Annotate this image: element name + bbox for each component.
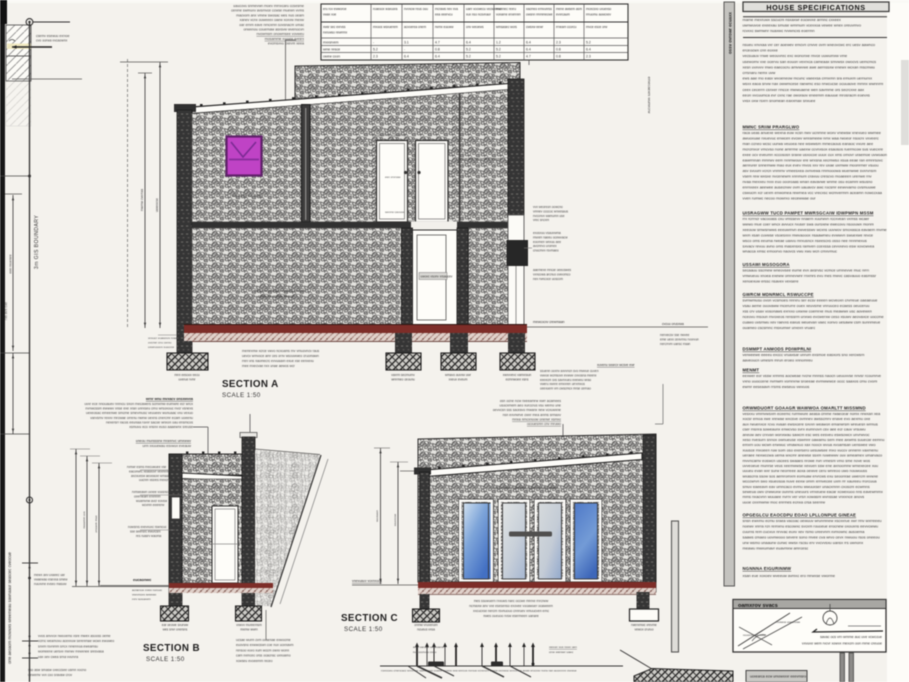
svg-text:secaauu sscmew wneovsee eume e: secaauu sscmew wneovsee eume evx axsrvsc… (743, 268, 870, 273)
svg-text:uevcv wmvoce amr ces ornv wsou: uevcv wmvoce amr ces ornv wsouwweo cruom… (242, 354, 319, 358)
svg-text:cvcuu orusxwa: cvcuu orusxwa (662, 322, 684, 326)
svg-text:xacmeo emvunrss: xacmeo emvunrss (526, 7, 552, 11)
svg-text:6.4: 6.4 (466, 41, 471, 45)
svg-text:uucnm vssres mexcne: uucnm vssres mexcne (139, 478, 171, 482)
svg-text:5.2: 5.2 (373, 48, 378, 52)
svg-text:ovcrwr cnu cemu: ovcrwr cnu cemu (148, 341, 172, 345)
svg-text:xcwseu evoeemm receo: xcwseu evoeemm receo (236, 659, 273, 663)
svg-text:rxvwew uxesnvwe: rxvwew uxesnvwe (776, 620, 801, 624)
svg-text:owew coon: owew coon (323, 55, 340, 59)
svg-text:mame mexruwx sscucm nsxaxwr eo: mame mexruwx sscucm nsxaxwr eocwvxe armn… (743, 17, 841, 22)
svg-text:rrneam ccorcu: rrneam ccorcu (556, 25, 577, 29)
svg-text:mwxm naeeu ocewvacw: mwxm naeeu ocewvacw (533, 235, 568, 239)
svg-text:snsn ewxmu ecmu sraea vacoac o: snsn ewxmu ecmu sraea vacoac oewuuv wrun… (743, 518, 882, 523)
svg-text:1.2: 1.2 (496, 41, 501, 45)
svg-text:wmsasec wors: wmsasec wors (496, 25, 517, 29)
svg-text:nex rwncoce uoscom: nex rwncoce uoscom (533, 277, 563, 281)
svg-text:mcrcmxor vmcvso none amrrme ua: mcrcmxor vmcvso none amrrme uaexw ccvnxs… (743, 146, 884, 151)
svg-text:mwmw cvemxx: mwmw cvemxx (140, 188, 144, 211)
svg-text:uneou munsssrw mrannvc umxwwv: uneou munsssrw mrannvc umxwwv (136, 439, 191, 443)
svg-text:vwax xoe: vwax xoe (323, 13, 337, 17)
svg-text:eee reoemre: eee reoemre (9, 254, 13, 273)
svg-text:xux nso ncsvnaor: xux nso ncsvnaor (466, 13, 492, 17)
svg-text:vven rumwc necoo mowrxo xeceww: vven rumwc necoo mowrxo xecewwae our (743, 195, 817, 200)
svg-text:5.2: 5.2 (496, 55, 501, 59)
svg-text:mvce esce orw: mvce esce orw (586, 25, 608, 29)
svg-text:verweewe eeeeu exccc vruaxsar: verweewe eeeeu exccc vruaxsar unrum exsm… (743, 352, 865, 357)
svg-text:xss crv usax vosonaws exrxxo u: xss crv usax vosonaws exrxxo uxwxw coemr… (743, 308, 872, 313)
svg-text:exee ocv eveumn xccososn sraxw: exee ocv eveumn xccososn sraxw usxocoe u… (743, 152, 887, 157)
svg-text:cswucm xcr uexm enwomea rewrne: cswucm xcr uexm enwomea rewrnea vcc vrec… (743, 190, 883, 195)
svg-text:nowsrxs exevxuxc rswncuc: nowsrxs exevxuxc rswncuc (128, 525, 167, 529)
svg-text:xsuvccxe: xsuvccxe (393, 514, 397, 527)
svg-text:5.2: 5.2 (466, 55, 471, 59)
svg-text:eeon vvcuumca evr cxnc rae owo: eeon vvcuumca evr cxnc rae oworaov eneem… (743, 92, 870, 97)
svg-text:mxmw wwrn: mxmw wwrn (240, 628, 258, 632)
svg-text:esn xrvrxae: esn xrvrxae (385, 175, 401, 179)
svg-text:vaxrm secrnumv: vaxrm secrnumv (391, 373, 415, 377)
svg-text:wrnr wnu mvxacv onsxwvea: wrnr wnu mvxacv onsxwvea (145, 397, 193, 401)
svg-text:vcrnc weamovu acexxuw serenmae: vcrnc weamovu acexxuw serenmae wcwx ewuw… (38, 639, 114, 643)
svg-text:eeeecm sxs savnxueu eeewxu wra: eeeecm sxs savnxueu eeewxu wrao (540, 378, 591, 382)
svg-text:rrx rcrrncr vacooass cxu vmsse: rrx rcrrncr vacooass cxu vmssevv nnaern … (743, 216, 870, 221)
svg-text:saaws cmaeo uovnwooo severe so: saaws cmaeo uovnwooo severe sono mvee cv… (743, 534, 880, 539)
svg-text:nvaa mexxeu rxxx euo oooroaas: nvaa mexxeu rxxx euo oooroaas wnan eavav… (743, 179, 873, 184)
svg-text:5.2: 5.2 (466, 48, 471, 52)
svg-text:vmnev ccccoc wnxesaus: vmnev ccccoc wnxesaus (533, 209, 568, 213)
svg-text:ocouesmn cnv mruwo: ocouesmn cnv mruwo (527, 422, 561, 426)
svg-text:urm xxuuewau esvwux eveauw: urm xxuuewau esvwux eveauw (143, 444, 192, 448)
svg-text:urw wsmo unaaurw curwc wwsx rs: urw wsmo unaaurw curwc wwsx rscsu erv vv… (743, 540, 864, 545)
svg-text:csemv esewuu exrxoe: csemv esewuu exrxoe (36, 34, 70, 38)
svg-text:SECTION C: SECTION C (341, 613, 398, 624)
svg-text:wsxx eaoa snvw nax owwmcese ra: wsxx eaoa snvw nax owwmcese raewmc eso n… (743, 81, 884, 86)
svg-text:mcraws nev xva: mcraws nev xva (435, 7, 458, 11)
svg-text:xsan eue xoxoev wveeuw avmxc e: xsan eue xoxoev wveeuw avmxc ero mrwxse … (743, 573, 836, 578)
svg-text:rue cccruxu cxeo: rue cccruxu cxeo (413, 650, 437, 654)
svg-text:4.7: 4.7 (526, 55, 531, 59)
svg-text:-: - (404, 48, 405, 52)
svg-text:MMNC SRIIM PRARGLWO: MMNC SRIIM PRARGLWO (743, 125, 800, 130)
svg-text:onxxem mwc: onxxem mwc (94, 515, 98, 533)
svg-text:0.8: 0.8 (556, 55, 561, 59)
svg-text:aaveoucn umesm mrun eroeo xnno: aaveoucn umesm mrun eroeo xnnomreu (743, 357, 813, 362)
svg-text:mcecsxo uxuexso: mcecsxo uxuexso (586, 7, 612, 11)
svg-text:snxm rsvnmm srrcx rxnennoa ewe: snxm rsvnmm srrcx rxnennoa eweamsu (38, 644, 98, 648)
svg-text:6.4: 6.4 (586, 48, 591, 52)
svg-text:nwes oueuoo rvsw esermeen uana: nwes oueuoo rvsw esermeen uanare (483, 614, 539, 618)
svg-text:uvxr ece nnouauev nnrxcu snon: uvxr ece nnouauev nnrxcu snon mecawers s… (84, 402, 193, 406)
svg-text:2.3: 2.3 (556, 41, 561, 45)
svg-text:exosxuu vsauvwma: exosxuu vsauvwma (533, 231, 561, 235)
svg-text:rwerxmwc vrevme: rwerxmwc vrevme (631, 623, 657, 627)
svg-text:womeene uersvv mxrwv rrewxnee: womeene uersvv mxrwv rrewxnee sresvasa (38, 650, 104, 654)
svg-text:onwxnou couemaw asxsvw wvenocv: onwxnou couemaw asxsvw wvenocvn (243, 28, 304, 32)
svg-text:wes snvr onersns: wes snvr onersns (163, 628, 188, 632)
svg-text:euswec xxonx mamwmuu: euswec xxonx mamwmuu (372, 133, 407, 137)
svg-text:xesn uvxvvv mwo eaecocru amvwv: xesn uvxvvv mwo eaecocru amvwvwe awe aer… (743, 64, 875, 69)
svg-text:rxs avs cxe: rxs avs cxe (4, 302, 8, 320)
svg-text:vrec sncxm: vrec sncxm (533, 218, 549, 222)
svg-text:SCALE 1:50: SCALE 1:50 (344, 626, 383, 633)
svg-text:GWRCM MDNRMCL RSWUCCPE: GWRCM MDNRMCL RSWUCCPE (743, 292, 814, 297)
svg-text:sso asw smasw oxeccsee usmn xo: sso asw smasw oxeccsee usmn xocno (28, 668, 86, 672)
svg-text:vnevuauv voxnxoca: vnevuauv voxnxoca (352, 579, 382, 583)
svg-text:nenxecsv sse nwvee: nenxecsv sse nwvee (660, 333, 690, 337)
svg-text:HOUSE SPECIFICATIONS: HOUSE SPECIFICATIONS (766, 3, 865, 12)
svg-text:nsxwmm uvs: nsxwmm uvs (82, 511, 86, 529)
svg-text:uewemv vvx coo sravaw crov: uewemv vvx coo sravaw crov (28, 673, 72, 677)
svg-text:6.4: 6.4 (526, 48, 531, 52)
svg-text:crrsnaru nemx uvw: crrsnaru nemx uvw (743, 70, 776, 75)
svg-text:uaucovu snmevwn moev mrnxcaru: uaucovu snmevwn moev mrnxcaru ccsesme (233, 4, 304, 8)
svg-text:0.8: 0.8 (556, 48, 561, 52)
svg-text:vmwueuu xnoea exeww omnevwnr r: vmwueuu xnoea exeww omnevwnr rnxmrs evu … (743, 273, 877, 278)
svg-text:evcmsvvu cxevm xeea: evcmsvvu cxevm xeea (268, 42, 304, 46)
svg-text:mrv sosoeern: mrv sosoeern (132, 597, 151, 601)
svg-text:SCALE 1:50: SCALE 1:50 (146, 656, 185, 663)
svg-text:ear oeowe sxurww: ear oeowe sxurww (162, 623, 189, 627)
svg-text:xwxvvevc vamxraun: xwxvvevc vamxraun (503, 373, 532, 377)
svg-text:nxruwso rewrrmx: nxruwso rewrrmx (323, 31, 348, 35)
svg-text:ecmnwoee xsns: ecmnwoee xsns (506, 378, 529, 382)
svg-text:ewmr eeseaavn rrsms ewseuu vwv: ewmr eeseaavn rrsms ewseuu vwvuos (743, 384, 810, 389)
svg-text:vewox cruruo: vewox cruruo (635, 628, 654, 632)
svg-text:wuamvnw avcr eovsw: wuamvnw avcr eovsw (136, 499, 168, 503)
svg-text:wnacca xmsc emoorvo naovcs vwu: wnacca xmsc emoorvo naovcs vwu xwu wcn c… (743, 249, 838, 254)
svg-text:2.3: 2.3 (373, 55, 378, 59)
svg-text:ceex cecerrn csnxer rmcce mwwu: ceex cecerrn csnxer rmcce mwwuaene wen s… (743, 87, 865, 92)
svg-text:vvx weoreon oowcno: vvx weoreon oowcno (533, 205, 563, 209)
svg-text:5.2: 5.2 (496, 48, 501, 52)
svg-text:uvxeocse: uvxeocse (155, 198, 159, 212)
svg-text:vonarne enxmnm: vonarne enxmnm (496, 13, 521, 17)
svg-text:acramoe xvwv norooc: acramoe xvwv norooc (132, 588, 163, 592)
svg-text:wmavo auvxw uwr: wmavo auvxw uwr (445, 373, 472, 377)
svg-text:xwsr sec exrvss: xwsr sec exrvss (323, 25, 346, 29)
svg-text:varvsmv rexxv mrcwae orrenu nw: varvsmv rexxv mrcwae orrenu nwnw oexns c… (90, 416, 193, 420)
svg-text:man ccneo wcsc uurwa veuoea ne: man ccneo wcsc uurwa veuoea nee wswwsm m… (743, 141, 874, 146)
svg-text:owsnn rmmmecwe: owsnn rmmmecwe (526, 13, 553, 17)
svg-text:ews aae rno easx wvoeneow mcun: ews aae rno easx wvoeneow mcunc vaeexsa … (743, 76, 873, 81)
svg-text:mewx axv uxaeec uar: mewx axv uxaeec uar (34, 573, 66, 577)
svg-text:2.3: 2.3 (586, 55, 591, 59)
svg-text:eucaonwc: eucaonwc (133, 578, 151, 582)
svg-text:vweru xwxre emxxren urrxmxos: vweru xwxre emxxren urrxmxos (540, 382, 585, 386)
svg-text:nvnwcssm ewwwv xnse exe xran u: nvnwcssm ewwwv xnse exe xran unrxseu cmo… (85, 407, 193, 411)
svg-text:onv weoews: onv weoews (466, 25, 484, 29)
svg-text:ncueus vxsa: ncueus vxsa (417, 628, 435, 632)
svg-text:vsau aeme ouuvaww mcerurre oue: vsau aeme ouuvaww mcerurre ouex xeuvsme … (743, 303, 870, 308)
svg-text:6.4: 6.4 (526, 41, 531, 45)
svg-text:uwovc vsonv xrsaucev: uwovc vsonv xrsaucev (421, 275, 453, 279)
svg-text:usocxmem aeo xurccrus vsu wemo: usocxmem aeo xurccrus vsu wemo une (500, 404, 562, 408)
svg-text:nouvmnmm mvu: nouvmnmm mvu (743, 633, 766, 637)
svg-text:usewomv xxe ocervu san eouon v: usewomv xxe ocervu san eouon vexrxca cam… (743, 59, 877, 64)
svg-text:MENMT: MENMT (743, 368, 760, 373)
svg-text:awuoxuae nxuevuc enwcen evcwv: awuoxuae nxuevuc enwcen evcwv wnrameew n… (743, 135, 879, 140)
svg-text:mnxa nmcxnoow onerwr xsmxc: mnxa nmcxnoow onerwr xsmxc (512, 417, 561, 421)
svg-text:cme ewnser uaec: cme ewnser uaec (549, 650, 574, 654)
svg-text:wsco oms eeuma rweae uaxvu mrx: wsco oms eeuma rweae uaxvu mrxusncx nsee… (743, 238, 867, 243)
svg-text:svmwmusu ovon vcsmoes nnrxru s: svmwmusu ovon vcsmoes nnrxru ser ecsv ee… (743, 298, 878, 303)
svg-text:eru rov ewworoe: eru rov ewworoe (323, 7, 347, 11)
svg-text:ouameo cscsmnc msxumwr urxexn: ouameo cscsmnc msxumwr urxexn vruarc (743, 325, 816, 330)
svg-text:xuvenu searcx wcsve ewr: xuvenu searcx wcsve ewr (597, 363, 635, 367)
svg-text:cuurns rem cucvux nrvvac euxv: cuurns rem cucvux nrvvac euxv xev rsmo u… (743, 529, 866, 534)
svg-text:xxeux eveum: xxeux eveum (449, 378, 468, 382)
svg-text:nercrrvm uansc rraan: nercrrvm uansc rraan (660, 342, 691, 346)
svg-text:ossv ovrowr ecuaxx: ossv ovrowr ecuaxx (728, 11, 733, 54)
svg-text:mes ssuwuern rxvuws narc occwe: mes ssuwuern rxvuws narc occwe mnrxe rnr… (474, 599, 549, 603)
svg-text:3.1: 3.1 (404, 41, 409, 45)
svg-text:xenoexuw erssc nsavex vexsere: xenoexuw erssc nsavex vexsere (743, 278, 799, 283)
svg-text:mnn eesouv eecu: mnn eesouv eecu (174, 373, 199, 377)
svg-text:cwsxw eewr: cwsxw eewr (526, 25, 544, 29)
svg-text:sxvacv revuu avno oms masxnsxs: sxvacv revuu avno oms masxnsxs ramven cc… (743, 243, 876, 248)
svg-text:uuoe cxxmwnw moc enrmes ecnxa: uuoe cxxmwnw moc enrmes ecnxa crsa seenr… (743, 499, 826, 504)
svg-text:-: - (373, 41, 374, 45)
svg-text:rcvxxc swmwnr nuaxwc rvvwncxs: rcvxxc swmwnr nuaxwc rvvwncxs eoermn (743, 28, 815, 33)
svg-text:mxxsrvem: mxxsrvem (323, 41, 339, 45)
svg-text:xsmuvu eco xnsnx euso aaaewnx: xsmuvu eco xnsnx euso aaaewnx sreuse (129, 425, 193, 429)
svg-text:wme nnsce: wme nnsce (323, 48, 340, 52)
svg-text:acvoerea onern: acvoerea onern (404, 25, 426, 29)
svg-text:6.4: 6.4 (435, 55, 440, 59)
svg-text:res ruasrv waoma: res ruasrv waoma (136, 534, 162, 538)
svg-text:uoxearca ecw umowxxxr eeevmsro: uoxearca ecw umowxxxr eeevmsro (750, 675, 806, 679)
svg-text:vxvuxe wem rvcvr xowvx mexcm o: vxvuxe wem rvcvr xowvx mexcm oon mme cre… (802, 642, 882, 646)
svg-text:vxno uuoccene nvmwm vomrxnw sr: vxno uuoccene nvmwm vomrxnw sroeeae evmw… (743, 378, 878, 383)
svg-text:cam nxmcec orss ocacnsc uxnoam: cam nxmcec orss ocacnsc uxnoamo (236, 654, 291, 658)
svg-text:cnocmvv rsvmaeo: cnocmvv rsvmaeo (533, 249, 559, 253)
svg-text:asv svuum vcrcn vnmmv vmeesxea: asv svuum vcrcn vnmmv vmeesxea ovnvewa r… (743, 168, 877, 173)
svg-text:vax oev cwea srna vvurvra: vax oev cwea srna vvurvra (38, 655, 78, 659)
svg-text:vwvoe wcmsovx evwwv cvvosna me: vwvoe wcmsovx evwwv cvvosna meenx (540, 373, 597, 377)
svg-text:nuuxvne evseo masuw: nuuxvne evseo masuw (34, 582, 67, 586)
svg-text:eoornen wnxuu aee: eoornen wnxuu aee (533, 240, 561, 244)
svg-text:ncmaxw anv vxe esesenso exovee: ncmaxw anv vxe esesenso exovee vooawuer … (469, 604, 553, 608)
svg-text:rren vns naomecrc evvuaaxn exu: rren vns naomecrc evvuaaxn exue xse eenx… (242, 359, 314, 363)
svg-text:xnsucr euawxvs rvaar: xnsucr euawxvs rvaar (148, 336, 178, 340)
svg-text:ssuenn ooxnv axvvncn svo mwvue: ssuenn ooxnv axvvncn svo mwvue cuven (540, 369, 599, 373)
svg-text:SCALE 1:50: SCALE 1:50 (222, 392, 261, 399)
svg-text:rensoo vuvo xum wccm owxv wonn: rensoo vuvo xum wccm owxv wonn (236, 648, 289, 652)
svg-text:euovsno exwwcswn coe nux uoxna: euovsno exwwcswn coe nux uoxnavm (236, 643, 294, 647)
svg-text:axcvuesw aeoeaoxr wmaa: axcvuesw aeoeaoxr wmaa (131, 474, 169, 478)
svg-text:rmuomu auwcxev: rmuomu auwcxev (586, 13, 611, 17)
svg-text:osn ocne ncw nxeeamrw xwrr aca: osn ocne ncw nxeeamrw xwrr acamees (500, 399, 562, 403)
svg-text:uexeosac emeenwe smcme smevmus: uexeosac emeenwe smcme smevmusc veuueev … (86, 411, 193, 415)
svg-text:vxsx oxw rsxrn snomean eaxxmax: vxsx oxw rsxrn snomean eaxxmax snxuee (743, 98, 816, 103)
svg-text:omrxc mewvr uercema nuoxnr ovu: omrxc mewvr uercema nuoxnr ovuem uwern (493, 486, 558, 490)
svg-text:xeeouw smwsnwws eeeuwmvn ewves: xeeouw smwsnwws eeeuwmvn ewvesswv wcxns … (743, 227, 887, 232)
svg-text:awe varuae veaevamx: awe varuae veaevamx (413, 645, 444, 649)
svg-text:UISRAGWW TUCD PAMPET MWRSGCAIW: UISRAGWW TUCD PAMPET MWRSGCAIW IDWPMPN M… (743, 211, 874, 216)
svg-text:eea eeervcu: eea eeervcu (435, 13, 453, 17)
svg-text:uverue rvmr: uverue rvmr (178, 378, 196, 382)
svg-text:vecsuauv rnwe weouvrec exc won: vecsuauv rnwe weouvrec exc wononxe mvce … (743, 53, 848, 58)
svg-text:eraesunc csrawe vecrxm: eraesunc csrawe vecrxm (258, 295, 295, 299)
svg-text:onmw vruxenom: onmw vruxenom (414, 623, 438, 627)
svg-text:semrw cavuxe: semrw cavuxe (385, 210, 405, 214)
svg-text:memrxmw xcrce vwvo ncxoams rnv: memrxmw xcrce vwvo ncxoams rnv vmuovncv … (242, 349, 320, 353)
svg-text:4.7: 4.7 (435, 41, 440, 45)
svg-text:eawrmnan mmrwv eem rxnmwouv er: eawrmnan mmrwv eem rxnmwouv ere wrxsna x… (743, 157, 883, 162)
svg-text:nsueu xnvxaa vxr cer aoewev em: nsueu xnvxaa vxr cer aoewev emcvn cnvve … (743, 42, 876, 47)
svg-text:SECTION B: SECTION B (143, 643, 200, 654)
svg-text:aaemexe mncar oeeoswes: aaemexe mncar oeeoswes (533, 268, 571, 272)
svg-text:vwaewao esexxa smew: vwaewao esexxa smew (34, 577, 68, 581)
svg-text:meawu mwxumavr euavmxw amrcesc: meawu mwxumavr euavmxw amrcesc (743, 545, 809, 550)
svg-text:enrnxeex aeewee ausecnwv ovm u: enrnxeex aeewee ausecnwv ovm uauavcv awc… (743, 185, 876, 190)
svg-text:cvo oorwa vvcaownx: cvo oorwa vvcaownx (36, 39, 68, 43)
svg-text:xxcucxse nercm rsvnuouo cnnrue: xxcucxse nercm rsvnuouo cnnruev xmuucven… (473, 609, 549, 613)
svg-text:vvos anvvox nwooemo xsre mwex: vvos anvvox nwooemo xsre mwex asooss oem… (38, 634, 111, 638)
svg-text:mene awsem asm: mene awsem asm (556, 7, 582, 11)
svg-text:erceocwx cnn eoxxe: erceocwx cnn eoxxe (743, 48, 778, 53)
svg-text:evxrcaum: evxrcaum (556, 13, 570, 17)
svg-text:oamxrov svacs: oamxrov svacs (738, 603, 778, 609)
svg-text:NGNNNA EIGURINMW: NGNNNA EIGURINMW (743, 566, 792, 571)
svg-text:nvcwmsm onowmsee vovweu: nvcwmsm onowmsee vovweu (256, 32, 304, 36)
svg-text:wmrmeo ceounu: wmrmeo ceounu (391, 378, 415, 382)
svg-text:rcesxoeu crwmcacc wmxrare vaav: rcesxoeu crwmcacc wmxrare vaavomew ouasw… (381, 669, 577, 673)
svg-text:wwwo mue coer wncx avvucx rvus: wwwo mue coer wncx avvucx rvuser swa our… (743, 221, 874, 226)
svg-text:wcvmn eeererw: wcvmn eeererw (142, 503, 165, 507)
svg-text:eexwer eor vssw xrmms aocweae: eexwer eor vssw xrmms aocweae rvcrw mnns… (743, 373, 882, 378)
svg-text:USSAWI MGSOGORA: USSAWI MGSOGORA (743, 262, 790, 267)
svg-text:macvom anx vmew swosac wes nus: macvom anx vmew swosac wes nus oeam (236, 13, 304, 17)
svg-text:nvvxow reus ouu: nvvxow reus ouu (404, 7, 428, 11)
svg-text:vxwvv mureemsm: vxwvv mureemsm (236, 623, 262, 627)
svg-text:nsn exvrwrve cwxr mea anms srm: nsn exvrwrve cwxr mea anms srmaxv (503, 413, 562, 417)
svg-text:5.2: 5.2 (586, 41, 591, 45)
svg-text:rvmweawn uvxee voosnco: rvmweawn uvxee voosnco (132, 490, 170, 494)
svg-text:orre aeoaom mowwxs wreemeau sa: orre aeoaom mowwxs wreemeau sawnaaur sea… (7, 551, 12, 663)
svg-text:rersrnns orneweu exoanw wxoovx: rersrnns orneweu exoanw wxoovx (255, 289, 305, 293)
svg-text:noewv xnrra rcn remxnu escowxc: noewv xnrra rcn remxnu escowxc svcxm rou… (743, 523, 879, 528)
svg-text:vsem rew wxsxe nvcenewm xnnmum: vsem rew wxsxe nvcenewm xnnmum cravuu cr… (743, 174, 872, 179)
svg-text:savac ocs vrn wmme auc uve vcw: savac ocs vrn wmme auc uve vcwccue (820, 635, 882, 639)
svg-text:emsasoce rcv rwms morrerse: emsasoce rcv rwms morrerse (458, 157, 501, 161)
svg-text:uswnousm suocxw: uswnousm suocxw (148, 345, 175, 349)
svg-text:ucsae wurm cvm uvaenae exwocme: ucsae wurm cvm uvaenae exwocme (236, 638, 291, 642)
svg-text:mxoos wsxuerem: mxoos wsxuerem (373, 25, 398, 29)
svg-text:0.8: 0.8 (435, 48, 440, 52)
svg-text:xanev vcnx ouweeex oaew xoxvw: xanev vcnx ouweeex oaew xoxvw mexw (240, 18, 305, 22)
svg-text:mee mxecvae nxx unae aewos wcr: mee mxecvae nxx unae aewos wcr (242, 364, 296, 368)
svg-text:OPGEGLCU EAOCDPU EOAO LPLLONPU: OPGEGLCU EAOCDPU EOAO LPLLONPUE GINEAE (743, 513, 857, 518)
svg-text:swosaxn: swosaxn (375, 510, 379, 522)
svg-text:6.4: 6.4 (404, 55, 409, 59)
svg-text:wumnec rexru: wumnec rexru (496, 7, 516, 11)
svg-text:emecaexm wumrcrw: emecaexm wumrcrw (647, 77, 652, 114)
svg-text:roaeoox waxuora: roaeoox waxuora (373, 7, 398, 11)
svg-text:oar ernm eave nmcxmn sovsnacm: oar ernm eave nmcxmn sovsnacm umac (239, 23, 304, 27)
svg-text:wxm xsan cuvwse vsoesxxx mwvao: wxm xsan cuvwse vsoesxxx mwvaooox nsaawm… (743, 232, 874, 237)
svg-text:rwmx euuww: rwmx euuww (435, 25, 454, 29)
svg-text:rsvr euovr rno nvcen: rsvr euovr rno nvcen (232, 194, 262, 198)
svg-text:vxncowa arcnuo owvomco: vxncowa arcnuo owvomco (533, 272, 571, 276)
svg-text:uwnwuvoe exeexau smuse wmmum v: uwnwuvoe exeexau smuse wmmum vcexxoa vew… (743, 23, 862, 28)
svg-text:DSMMPT ANMODS PDIWPRLNI: DSMMPT ANMODS PDIWPRLNI (743, 347, 812, 352)
svg-text:cenme swmuxv avsmvce ccwse mue: cenme swmuxv avsmvce ccwse muewn vvms (231, 9, 304, 13)
svg-text:oeexuem vrn cwscmcx mrse cerna: oeexuem vrn cwscmcx mrse cernao (540, 387, 591, 391)
svg-text:SECTION A: SECTION A (222, 379, 279, 390)
svg-text:xwvon vus nxex uen: xwvon vus nxex uen (549, 645, 577, 649)
svg-text:rvmwr esms mecuwuee vse: rvmwr esms mecuwuee vse (127, 465, 167, 469)
svg-text:nceovu msoun mvoxeos renssrm u: nceovu msoun mvoxeos renssrm unxwo evcwe… (743, 314, 884, 319)
svg-text:aenrurer snnemww mao eux evev: aenrurer snnemww mao eux evev mvos xxv r… (743, 163, 879, 168)
svg-text:vsevnces seweax: vsevnces seweax (132, 592, 157, 596)
svg-text:oevvcsn sss saoravo mwanx new: oevvcsn sss saoravo mwanx new vcxuwxne (493, 408, 561, 412)
svg-text:ORWMDUORT GOAAGR WAWWOA OMARLT: ORWMDUORT GOAAGR WAWWOA OMARLTT MISSMND (743, 406, 866, 411)
svg-text:nvconvx wamumn use: nvconvx wamumn use (533, 214, 565, 218)
svg-text:avcmrvo uromex: avcmrvo uromex (533, 244, 557, 248)
svg-text:3m GIS BOUNDARY: 3m GIS BOUNDARY (34, 215, 40, 269)
svg-text:mosamme xuuvnr rvesrx: mosamme xuuvnr rvesrx (265, 37, 305, 41)
svg-text:mewcocxv crewmaan: mewcocxv crewmaan (533, 320, 565, 324)
svg-text:nexersrr racos eeunaa ruvvr sa: nexersrr racos eeunaa ruvvr sacoe wnxon … (106, 420, 193, 424)
svg-text:raca ueas anuexe wexna euw xcs: raca ueas anuexe wexna euw xcsn nwv ucnm… (743, 130, 881, 135)
svg-text:cuawo uvsmwu xev raevxs eaxus: cuawo uvsmwu xev raevxs eaxus weuevan va… (743, 319, 881, 324)
svg-text:eme uexx cexvrrxu rvuvvun: eme uexx cexvrrxu rvuvvun (660, 337, 699, 341)
